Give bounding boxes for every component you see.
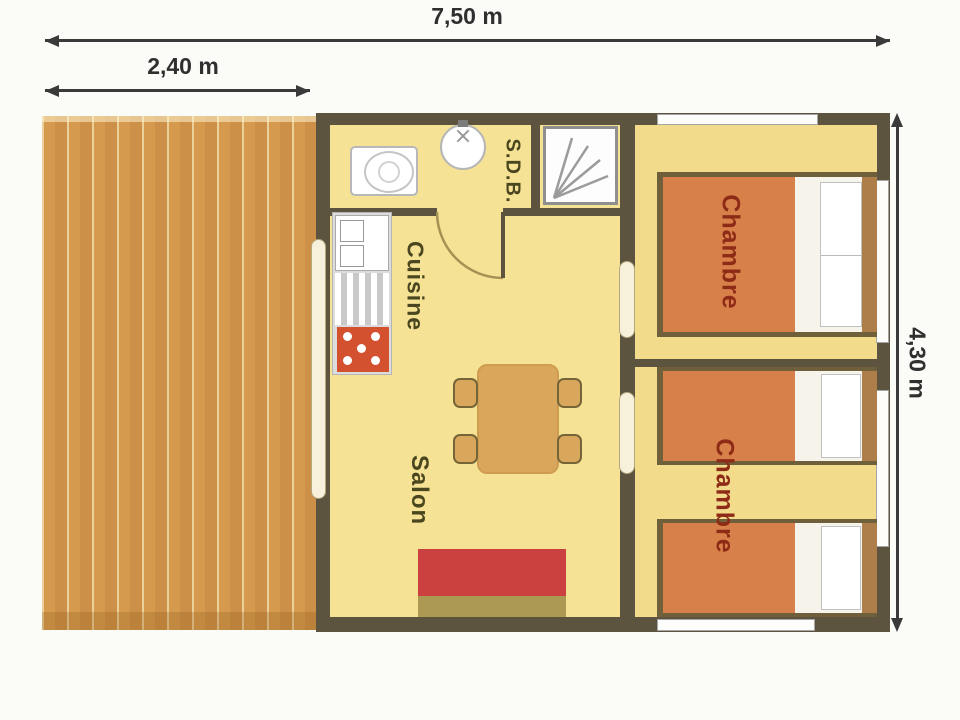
shower-spray-icon: [548, 130, 616, 202]
sofa: [418, 549, 566, 598]
dining-table: [477, 364, 559, 474]
hinged-door-bathroom: [436, 211, 508, 283]
deck-planks-icon: [42, 116, 317, 630]
chair: [453, 434, 478, 464]
dimension-line-total-width: [45, 39, 890, 42]
burner: [371, 332, 380, 341]
arrow-left-icon: [45, 85, 59, 97]
bathroom-wall-right: [503, 208, 620, 216]
double-bed: [657, 172, 877, 337]
door-swing-arc: [437, 212, 503, 278]
burner: [343, 332, 352, 341]
arrow-right-icon: [876, 35, 890, 47]
dimension-label-deck-width: 2,40 m: [147, 53, 219, 80]
window-bottom: [657, 619, 815, 631]
dimension-label-total-width: 7,50 m: [431, 3, 503, 30]
dimension-label-total-height: 4,30 m: [904, 327, 931, 399]
sink-basin: [340, 245, 364, 267]
burner: [371, 356, 380, 365]
window-right-bedroom2: [876, 390, 889, 547]
headboard: [862, 177, 877, 332]
arrow-up-icon: [891, 113, 903, 127]
single-bed: [657, 519, 877, 617]
sliding-door-deck: [311, 239, 326, 499]
toilet-bowl-inner: [378, 161, 400, 183]
toilet-icon: [350, 146, 418, 196]
kitchen-sink-icon: [335, 215, 389, 271]
chair: [453, 378, 478, 408]
washbasin-icon: [440, 124, 486, 170]
pillow: [821, 526, 861, 610]
arrow-down-icon: [891, 618, 903, 632]
burner: [357, 344, 366, 353]
arrow-left-icon: [45, 35, 59, 47]
chair: [557, 434, 582, 464]
chair: [557, 378, 582, 408]
washbasin-tap: [458, 120, 468, 127]
kitchen-unit: [332, 212, 392, 375]
dimension-line-deck-width: [45, 89, 310, 92]
sink-basin: [340, 220, 364, 242]
label-bedroom-2: Chambre: [710, 438, 739, 553]
window-right-bedroom1: [876, 180, 889, 343]
bedroom-divider-wall: [635, 359, 877, 367]
stove-icon: [337, 327, 389, 372]
shower-divider-wall: [531, 125, 540, 210]
label-living-room: Salon: [405, 455, 433, 525]
corridor-wall: [620, 125, 635, 617]
pillow: [820, 182, 862, 327]
burner: [343, 356, 352, 365]
sliding-door-bedroom1: [619, 261, 635, 338]
headboard: [862, 523, 877, 613]
deck-bottom-shade: [42, 612, 317, 630]
sliding-door-bedroom2: [619, 392, 635, 474]
pillow: [821, 374, 861, 458]
single-bed: [657, 367, 877, 465]
label-bathroom: S.D.B.: [501, 139, 524, 204]
sofa-base: [418, 596, 566, 617]
pillow-divider: [821, 255, 861, 256]
headboard: [862, 371, 877, 461]
label-kitchen: Cuisine: [402, 241, 429, 331]
deck-top-highlight: [42, 116, 317, 122]
label-bedroom-1: Chambre: [716, 194, 745, 309]
dimension-line-total-height: [896, 117, 899, 618]
drainer-icon: [335, 273, 389, 325]
window-top: [657, 114, 818, 125]
arrow-right-icon: [296, 85, 310, 97]
floor-plan: S.D.B. Cuisine Salon Chambre Chambre 7,5…: [0, 0, 960, 720]
